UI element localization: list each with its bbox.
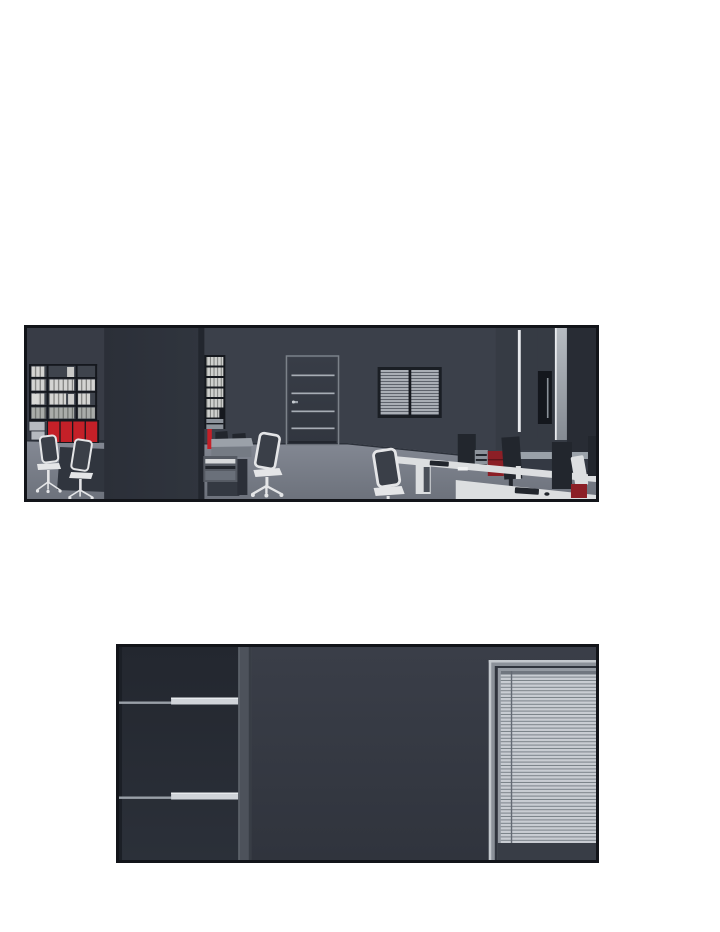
door-shadow <box>288 441 336 443</box>
wall-window <box>378 367 442 418</box>
chair-post <box>387 496 390 499</box>
comic-panel-office <box>24 325 599 502</box>
frame-highlight <box>489 660 492 860</box>
archive-box <box>68 394 74 405</box>
gap-reflection <box>547 378 549 418</box>
chair-seat <box>37 463 61 470</box>
shelf-edge-shadow <box>119 647 122 860</box>
binder-group <box>49 380 74 391</box>
window <box>489 660 596 860</box>
webtoon-page <box>0 0 720 932</box>
dark-room-illustration <box>119 647 596 860</box>
comic-panel-dark-room <box>116 644 599 863</box>
window-blinds-right <box>411 370 439 415</box>
binder-group <box>78 380 95 391</box>
file-cell <box>206 378 223 387</box>
chair-post <box>47 470 50 482</box>
chair-backrest <box>373 449 400 488</box>
binder-group-dim <box>49 408 74 419</box>
binder-group <box>49 394 66 405</box>
binder-group <box>78 394 90 405</box>
chair-backrest <box>71 439 93 471</box>
privacy-screen <box>458 434 476 467</box>
office-room <box>27 328 596 499</box>
binder-group-dim <box>32 408 46 419</box>
shelf-edge-line <box>119 797 172 799</box>
archive-box <box>32 394 38 404</box>
chair-seat <box>69 472 93 479</box>
venetian-blinds <box>501 671 596 843</box>
desk-top <box>211 438 253 447</box>
blinds-ladder-string <box>511 671 512 843</box>
door-handle-knob <box>292 401 295 404</box>
desk-front <box>211 447 251 457</box>
copier-base <box>207 482 239 496</box>
red-cabinet-door <box>61 422 72 443</box>
glass-edge-highlight <box>518 330 521 432</box>
fire-extinguisher <box>207 429 212 449</box>
window-mullion <box>409 370 412 415</box>
privacy-screen <box>552 442 572 489</box>
desk-leg-shadow <box>424 467 430 492</box>
monitor-edge <box>588 436 596 476</box>
blinds-headrail <box>501 671 596 675</box>
copier-front <box>205 471 235 480</box>
door-trim-line <box>291 393 334 395</box>
window-sill-shadow <box>498 843 596 860</box>
dark-room <box>119 647 596 860</box>
paper <box>458 467 468 471</box>
shelf-edge-line <box>119 702 172 704</box>
binder-group-dim <box>78 408 95 419</box>
mouse <box>544 492 549 496</box>
bookshelf <box>29 364 97 422</box>
copier-slot <box>205 466 235 469</box>
support-column <box>238 647 251 860</box>
file-cell <box>206 410 219 418</box>
binder-group <box>32 380 46 391</box>
file-cell <box>206 399 223 408</box>
door-trim-line <box>291 428 334 430</box>
chair-backrest <box>255 433 281 470</box>
archive-box <box>67 367 74 377</box>
shelf-body <box>119 647 238 860</box>
file-column <box>204 355 225 429</box>
chair-post <box>79 479 82 490</box>
file-cell <box>206 389 223 398</box>
chair-backrest <box>39 435 58 463</box>
red-pedestal-cabinet <box>571 484 587 498</box>
column-shadow <box>249 647 252 860</box>
file-cell <box>206 368 223 377</box>
window-blinds-left <box>381 370 409 415</box>
pillar <box>104 328 204 499</box>
door-trim-line <box>291 411 334 413</box>
desk-side-panel <box>237 459 247 495</box>
binder-group <box>32 367 45 377</box>
door-trim-line <box>291 375 334 377</box>
column-highlight <box>238 647 240 860</box>
office-scene-illustration <box>27 328 596 499</box>
file-cell <box>206 357 223 366</box>
cabinet-door-gap <box>538 371 552 424</box>
door <box>286 356 338 445</box>
door-leaf <box>288 358 336 443</box>
copier-tray <box>205 459 235 464</box>
red-cabinet-door <box>86 422 97 443</box>
shelf-unit <box>119 647 238 860</box>
